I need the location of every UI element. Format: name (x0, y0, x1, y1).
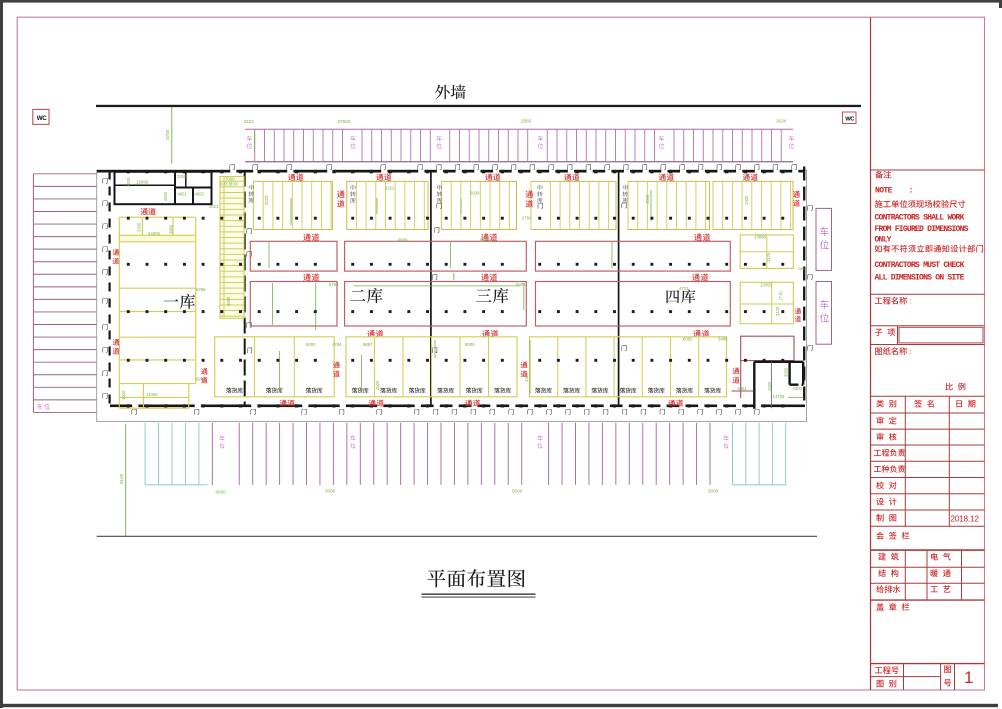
svg-text:15080: 15080 (136, 180, 149, 185)
svg-text:4300: 4300 (793, 386, 803, 391)
svg-text:NOTE :: NOTE : (875, 186, 913, 195)
svg-text:9680: 9680 (398, 237, 408, 242)
svg-text:2002: 2002 (798, 266, 808, 271)
svg-text:8000: 8000 (306, 342, 316, 347)
svg-text:27600: 27600 (338, 119, 351, 124)
svg-text:1: 1 (964, 668, 973, 687)
svg-text:5883: 5883 (480, 237, 490, 242)
svg-text:3200: 3200 (137, 222, 142, 232)
svg-text:(7.5): (7.5) (778, 291, 783, 300)
svg-text:2018.12: 2018.12 (951, 514, 980, 523)
svg-text:3125: 3125 (766, 252, 771, 262)
svg-text:2634: 2634 (776, 119, 787, 124)
svg-text:WC: WC (37, 115, 47, 122)
svg-text:3000: 3000 (645, 194, 650, 204)
svg-text:4600: 4600 (375, 380, 380, 390)
svg-text:3223: 3223 (264, 195, 269, 205)
svg-text:5000: 5000 (512, 489, 523, 494)
svg-text:7000: 7000 (225, 176, 235, 181)
svg-text:CONTRACTORS MUST CHECK: CONTRACTORS MUST CHECK (875, 261, 965, 270)
svg-text:5000: 5000 (708, 489, 719, 494)
svg-text:2000: 2000 (470, 191, 480, 196)
svg-text:5006: 5006 (516, 282, 526, 287)
svg-text:5486: 5486 (718, 337, 728, 342)
svg-text:9100: 9100 (119, 473, 124, 484)
svg-text:1500: 1500 (767, 381, 772, 391)
svg-text:3125: 3125 (775, 306, 780, 316)
svg-text:24005: 24005 (148, 231, 161, 236)
svg-text:6000: 6000 (683, 337, 693, 342)
svg-text:5000: 5000 (325, 489, 336, 494)
svg-text:6784: 6784 (329, 282, 339, 287)
svg-text:6000: 6000 (216, 490, 227, 495)
svg-text:13050: 13050 (760, 283, 773, 288)
svg-text:11000: 11000 (146, 392, 158, 397)
svg-text:3223: 3223 (244, 119, 255, 124)
svg-text:3021: 3021 (209, 204, 219, 209)
svg-text:3750: 3750 (165, 129, 170, 140)
svg-text:ONLY: ONLY (875, 236, 892, 245)
svg-text:9887: 9887 (363, 342, 373, 347)
svg-text:CONTRACTORS SHALL WORK: CONTRACTORS SHALL WORK (875, 214, 965, 223)
svg-text:ALL DIMENSIONS ON SITE: ALL DIMENSIONS ON SITE (875, 273, 965, 282)
svg-text:4601: 4601 (178, 191, 188, 196)
svg-text:6288: 6288 (196, 287, 206, 292)
svg-text:3800: 3800 (169, 224, 174, 234)
svg-text:6555: 6555 (226, 296, 231, 306)
svg-text:1500: 1500 (744, 195, 749, 205)
svg-text:3200: 3200 (177, 174, 187, 179)
svg-text:4721: 4721 (679, 286, 689, 291)
svg-text:4600: 4600 (163, 191, 168, 201)
svg-text:4602: 4602 (195, 191, 205, 196)
svg-text:13888: 13888 (754, 235, 767, 240)
svg-text:WC: WC (845, 117, 855, 123)
svg-text:2361: 2361 (738, 386, 748, 391)
svg-text:1000: 1000 (121, 390, 126, 400)
svg-text:4794: 4794 (332, 342, 342, 347)
svg-text:FROM FIGURED DIMENSIONS: FROM FIGURED DIMENSIONS (875, 225, 969, 234)
svg-text:14728: 14728 (773, 394, 786, 399)
svg-text:2784: 2784 (522, 216, 532, 221)
svg-text:3200: 3200 (126, 177, 131, 187)
svg-text:2583: 2583 (521, 119, 532, 124)
svg-text:2222: 2222 (385, 186, 395, 191)
svg-text:8000: 8000 (465, 342, 475, 347)
svg-text:3500: 3500 (783, 367, 788, 377)
